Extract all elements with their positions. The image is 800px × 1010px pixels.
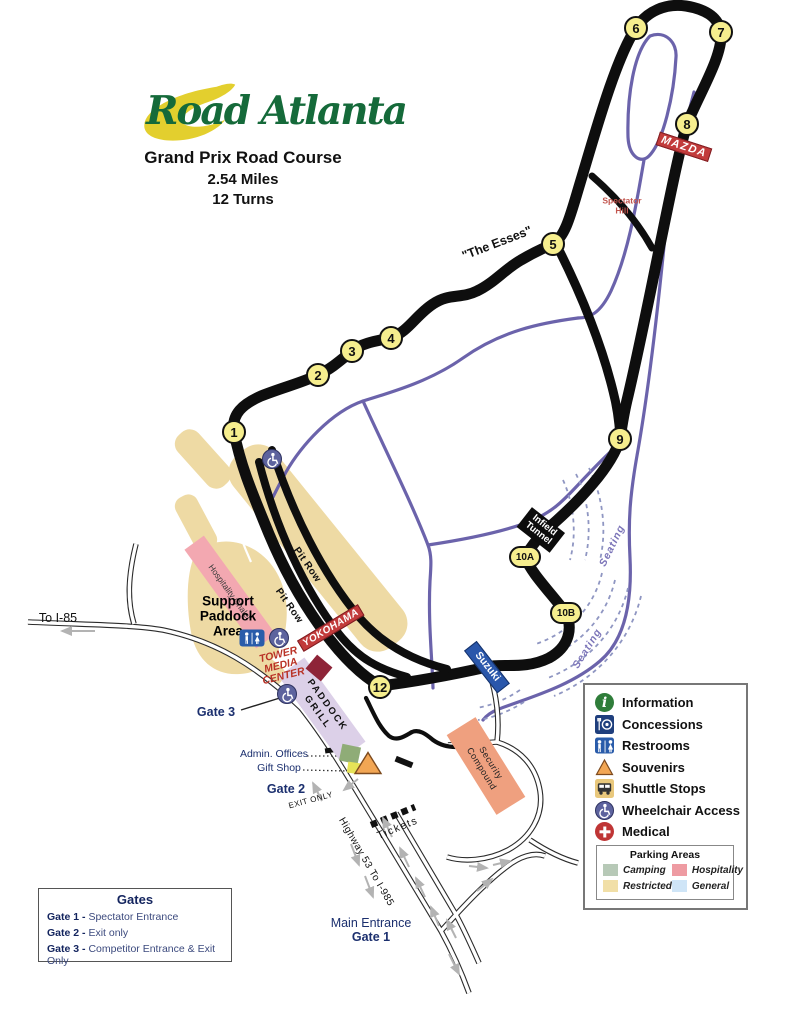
wheelchair-access-icon	[277, 684, 297, 704]
gate-3-info: Gate 3 - Competitor Entrance & Exit Only	[47, 943, 223, 967]
turn-badge-5: 5	[541, 232, 565, 256]
hospitality-swatch	[672, 864, 687, 876]
parking-hospitality: Hospitality	[672, 864, 743, 876]
legend: i Information Concessions Restro	[583, 683, 748, 910]
souvenirs-stand-icon	[353, 751, 383, 776]
gate-1-info: Gate 1 - Spectator Entrance	[47, 911, 223, 923]
turn-badge-4: 4	[379, 326, 403, 350]
turn-badge-9: 9	[608, 427, 632, 451]
turn-badge-12: 12	[368, 675, 392, 699]
parking-camping: Camping	[603, 864, 672, 876]
road-atlanta-track-map: Road Atlanta Grand Prix Road Course 2.54…	[0, 0, 800, 1010]
parking-areas-title: Parking Areas	[603, 849, 727, 861]
course-distance: 2.54 Miles	[144, 171, 341, 188]
turn-badge-2: 2	[306, 363, 330, 387]
legend-item-concessions: Concessions	[595, 714, 746, 736]
turn-badge-1: 1	[222, 420, 246, 444]
turn-badge-8: 8	[675, 112, 699, 136]
gate-2-info: Gate 2 - Exit only	[47, 927, 223, 939]
turn-badge-10B: 10B	[550, 602, 582, 624]
to-i85-label: To I-85	[39, 611, 77, 625]
turn-badge-6: 6	[624, 16, 648, 40]
course-turns: 12 Turns	[144, 191, 341, 208]
legend-item-shuttle-stops: Shuttle Stops	[595, 778, 746, 800]
restrooms-icon	[240, 630, 265, 647]
course-name: Grand Prix Road Course	[144, 148, 341, 168]
souvenirs-icon	[595, 758, 614, 777]
legend-item-restrooms: Restrooms	[595, 735, 746, 757]
restrooms-icon	[595, 736, 614, 755]
parking-areas-legend: Parking Areas Camping Hospitality Restri…	[596, 845, 734, 900]
legend-item-medical: Medical	[595, 821, 746, 843]
turn-badge-3: 3	[340, 339, 364, 363]
legend-item-information: i Information	[595, 692, 746, 714]
turn-badge-7: 7	[709, 20, 733, 44]
parking-restricted: Restricted	[603, 880, 672, 892]
admin-offices-label: Admin. Offices	[240, 749, 308, 761]
main-entrance-label: Main Entrance Gate 1	[331, 916, 412, 944]
wheelchair-access-icon	[595, 801, 614, 820]
parking-general: General	[672, 880, 743, 892]
course-subtitle: Grand Prix Road Course 2.54 Miles 12 Tur…	[144, 148, 341, 208]
spectator-hill-label: Spectator Hill	[602, 196, 641, 215]
legend-item-souvenirs: Souvenirs	[595, 757, 746, 779]
medical-icon	[595, 822, 614, 841]
gates-info-box: Gates Gate 1 - Spectator Entrance Gate 2…	[38, 888, 232, 962]
gates-title: Gates	[47, 892, 223, 907]
camping-swatch	[603, 864, 618, 876]
wheelchair-access-icon	[269, 628, 289, 648]
general-swatch	[672, 880, 687, 892]
gate-2-label: Gate 2	[267, 782, 305, 796]
wheelchair-access-icon	[262, 449, 282, 469]
turn-badge-10A: 10A	[509, 546, 541, 568]
restricted-swatch	[603, 880, 618, 892]
gate3-pointer-line	[241, 697, 283, 710]
legend-item-wheelchair-access: Wheelchair Access	[595, 800, 746, 822]
gate-3-label: Gate 3	[197, 705, 235, 719]
gift-shop-label: Gift Shop	[257, 763, 301, 775]
concessions-icon	[595, 715, 614, 734]
logo-text: Road Atlanta	[146, 88, 406, 134]
shuttle-stops-icon	[595, 779, 614, 798]
information-icon: i	[595, 693, 614, 712]
